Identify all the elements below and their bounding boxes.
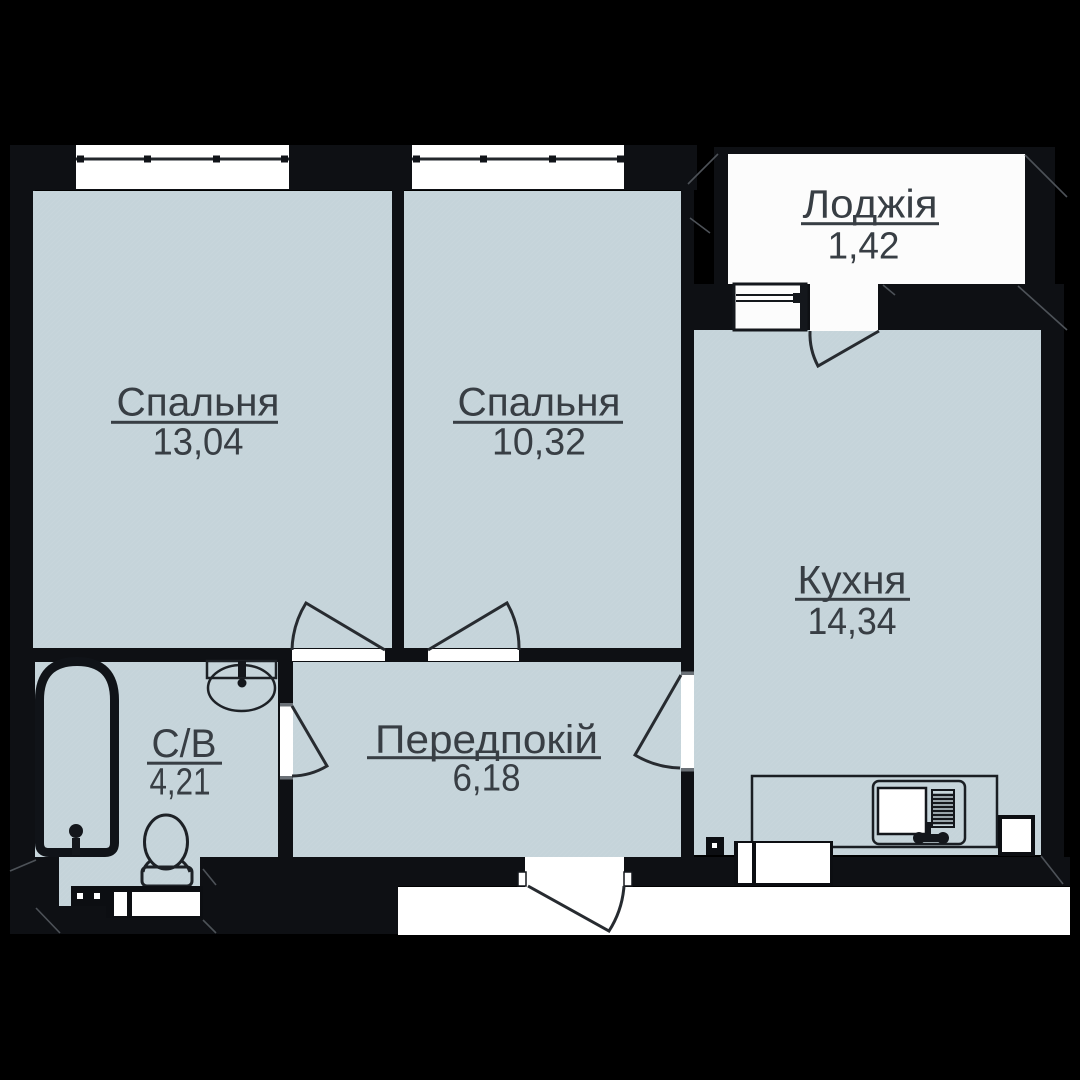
svg-text:Спальня: Спальня xyxy=(117,381,280,425)
svg-text:10,32: 10,32 xyxy=(492,421,586,463)
svg-text:Лоджія: Лоджія xyxy=(803,183,938,227)
svg-text:6,18: 6,18 xyxy=(453,758,521,800)
svg-text:4,21: 4,21 xyxy=(150,762,211,804)
svg-text:Передпокій: Передпокій xyxy=(375,718,598,762)
svg-text:13,04: 13,04 xyxy=(153,421,244,463)
svg-text:14,34: 14,34 xyxy=(808,601,897,643)
svg-text:Кухня: Кухня xyxy=(798,558,907,602)
svg-text:С/В: С/В xyxy=(152,722,217,766)
svg-text:1,42: 1,42 xyxy=(828,225,900,267)
svg-text:Спальня: Спальня xyxy=(458,381,621,425)
